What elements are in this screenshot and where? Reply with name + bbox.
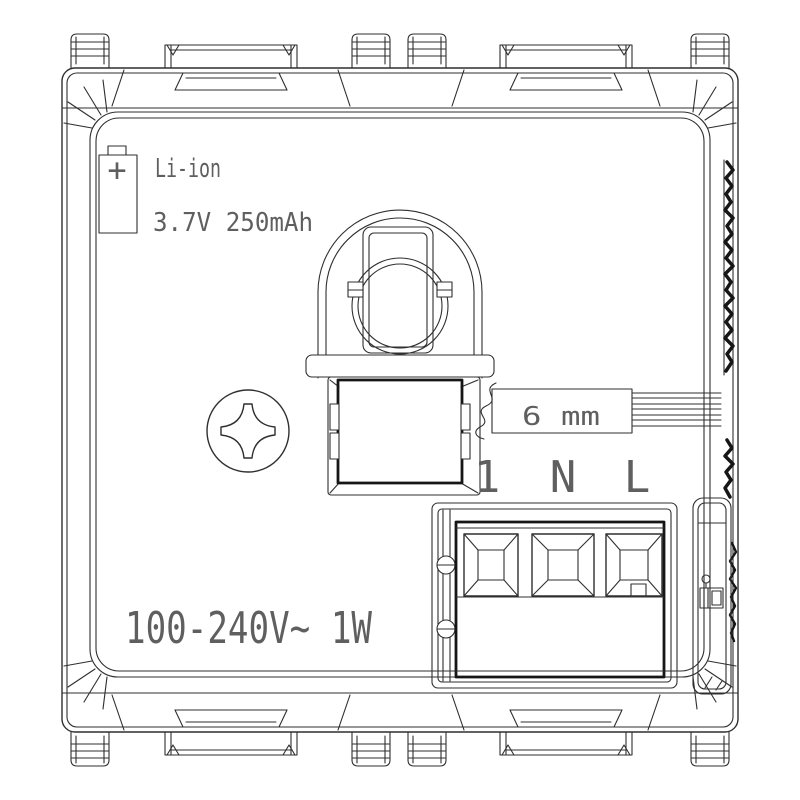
clip-top-right <box>691 34 729 68</box>
battery-polarity: + <box>107 151 126 189</box>
terminal-test-port <box>631 584 646 597</box>
power-rating-label: 100-240V~ 1W <box>125 603 372 654</box>
battery-rating-label: 3.7V 250mAh <box>153 208 313 238</box>
clip-bottom-left <box>71 732 109 766</box>
clip-bottom-center-left <box>352 732 390 766</box>
corner-top-left <box>64 80 107 128</box>
battery-type-label: Li-ion <box>155 154 221 184</box>
battery-symbol: + <box>99 146 137 233</box>
clip-bottom-center-right <box>408 732 446 766</box>
technical-drawing-page: + Li-ion 3.7V 250mAh <box>0 0 800 800</box>
clip-top-center-right <box>408 34 446 68</box>
terminal-label-1: 1 <box>474 452 501 503</box>
strip-length-label: 6 mm <box>522 402 600 432</box>
terminal-opening-1 <box>464 534 518 596</box>
corner-top-right <box>693 80 736 128</box>
phillips-cross-icon <box>221 404 275 458</box>
square-housing <box>328 377 480 495</box>
clip-top-left <box>71 34 109 68</box>
terminal-hinge <box>437 510 455 681</box>
terminal-label-n: N <box>550 452 577 503</box>
terminal-block <box>432 503 677 688</box>
terminal-label-l: L <box>624 452 651 503</box>
dome-base <box>306 355 494 377</box>
terminal-labels: 1 N L <box>474 452 651 503</box>
terminal-opening-3 <box>606 534 662 597</box>
dome-pivot-left <box>348 282 363 297</box>
phillips-screw <box>207 390 289 472</box>
dome-lamp-holder <box>306 210 494 378</box>
dome-pivot-right <box>437 282 452 297</box>
corner-bottom-left <box>64 661 107 709</box>
dome-slot <box>363 227 433 353</box>
clip-top-center-left <box>352 34 390 68</box>
terminal-opening-2 <box>532 534 594 596</box>
wire-conductors <box>632 393 721 426</box>
module-rear-view-drawing: + Li-ion 3.7V 250mAh <box>0 0 800 800</box>
clip-bottom-right <box>691 732 729 766</box>
stripped-wire: 6 mm <box>476 383 721 439</box>
corner-bottom-right <box>693 661 736 709</box>
